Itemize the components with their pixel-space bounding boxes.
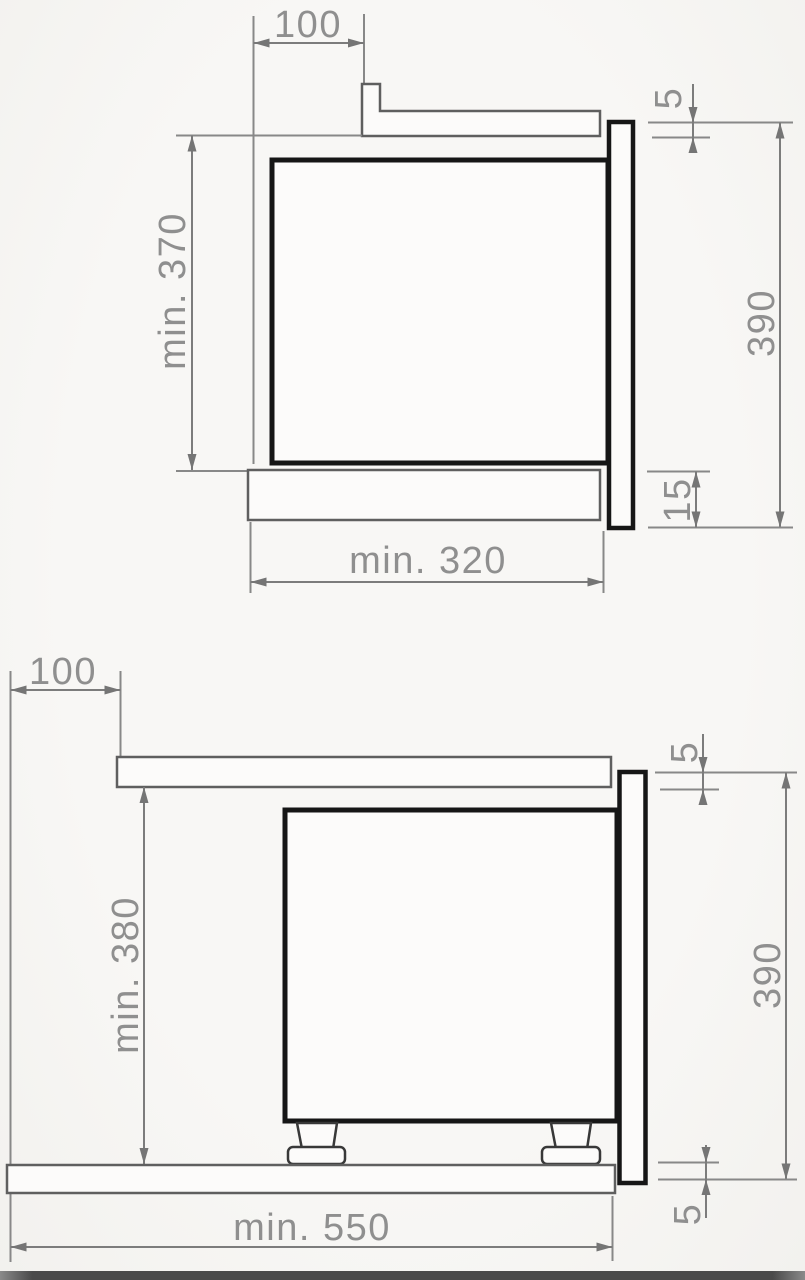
bottom-arrow-100-left <box>11 686 27 695</box>
bottom-worktop-shape <box>117 757 611 787</box>
bottom-appliance-door <box>620 772 646 1183</box>
top-upper-shelf-shape <box>362 84 600 136</box>
top-label-390: 390 <box>741 289 783 357</box>
top-bottom-shelf <box>248 470 600 520</box>
bottom-arrow-550-left <box>11 1243 27 1252</box>
bottom-label-550: min. 550 <box>233 1207 391 1249</box>
top-arrow-370-up <box>188 136 197 152</box>
top-arrow-5-up <box>689 138 698 154</box>
top-appliance-body <box>272 160 608 463</box>
top-arrow-100-right <box>348 39 364 48</box>
installation-diagram-canvas: 100 min. 370 5 390 15 <box>0 0 805 1280</box>
installation-drawing-page: 100 min. 370 5 390 15 <box>0 0 805 1280</box>
bottom-view-diagram: 100 min. 380 5 390 <box>7 651 797 1262</box>
bottom-base-board <box>7 1165 615 1193</box>
bottom-arrow-5bot-down <box>702 1147 711 1163</box>
bottom-appliance-body <box>285 810 617 1121</box>
bottom-arrow-5bot-up <box>702 1180 711 1196</box>
top-appliance-door <box>609 122 633 528</box>
bottom-label-380: min. 380 <box>105 896 147 1054</box>
top-arrow-320-right <box>588 578 604 587</box>
bottom-arrow-5top-up <box>699 790 708 806</box>
top-arrow-390-down <box>776 512 785 528</box>
bottom-label-100: 100 <box>29 651 97 693</box>
photo-bottom-edge-bar <box>0 1271 805 1280</box>
bottom-label-390: 390 <box>747 941 789 1009</box>
bottom-arrow-390-up <box>782 773 791 789</box>
top-arrow-390-up <box>776 123 785 139</box>
bottom-arrow-390-down <box>782 1164 791 1180</box>
top-label-15: 15 <box>657 477 699 522</box>
top-arrow-320-left <box>251 578 267 587</box>
top-arrow-370-down <box>188 454 197 470</box>
bottom-arrow-380-up <box>140 787 149 803</box>
top-label-370: min. 370 <box>152 212 194 370</box>
top-label-5: 5 <box>648 87 690 110</box>
bottom-arrow-380-down <box>140 1148 149 1164</box>
bottom-arrow-100-right <box>105 686 121 695</box>
top-arrow-100-left <box>254 39 270 48</box>
left-foot-pad <box>288 1147 345 1164</box>
top-label-100: 100 <box>274 4 342 46</box>
top-view-diagram: 100 min. 370 5 390 15 <box>152 4 793 593</box>
bottom-label-5top: 5 <box>664 741 706 764</box>
bottom-arrow-550-right <box>597 1243 613 1252</box>
top-label-320: min. 320 <box>349 540 507 582</box>
left-foot-stem <box>297 1123 337 1149</box>
right-foot-pad <box>542 1147 600 1164</box>
bottom-label-5bot: 5 <box>667 1203 709 1226</box>
right-foot-stem <box>551 1123 591 1149</box>
